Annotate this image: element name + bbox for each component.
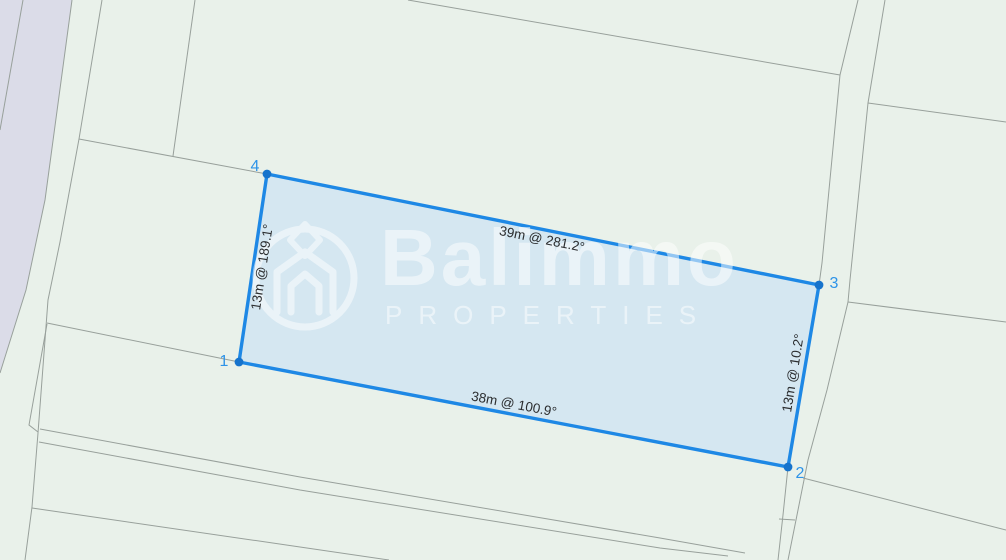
cadastral-boundary-line [779, 519, 795, 520]
cadastral-boundary-line [32, 508, 389, 560]
cadastral-boundary-line [803, 478, 1006, 530]
cadastral-boundary-line [79, 139, 267, 174]
cadastral-boundary-line [868, 103, 1006, 122]
road-band [0, 0, 72, 373]
parcel-vertex[interactable] [263, 170, 272, 179]
parcel-vertex[interactable] [815, 281, 824, 290]
cadastral-boundary-line [29, 324, 47, 432]
cadastral-boundary-line [848, 302, 1006, 322]
cadastral-boundary-line [408, 0, 840, 75]
parcel-vertex[interactable] [235, 358, 244, 367]
cadastral-boundary-line [47, 323, 239, 362]
map-canvas[interactable] [0, 0, 1006, 560]
parcel-vertex[interactable] [784, 463, 793, 472]
parcel-polygon[interactable] [239, 174, 819, 467]
cadastral-boundary-line [39, 442, 728, 556]
cadastral-boundary-line [40, 429, 745, 553]
cadastral-boundary-line [173, 0, 195, 156]
map-view[interactable]: Balimmo PROPERTIES 39m @ 281.2° 13m @ 10… [0, 0, 1006, 560]
